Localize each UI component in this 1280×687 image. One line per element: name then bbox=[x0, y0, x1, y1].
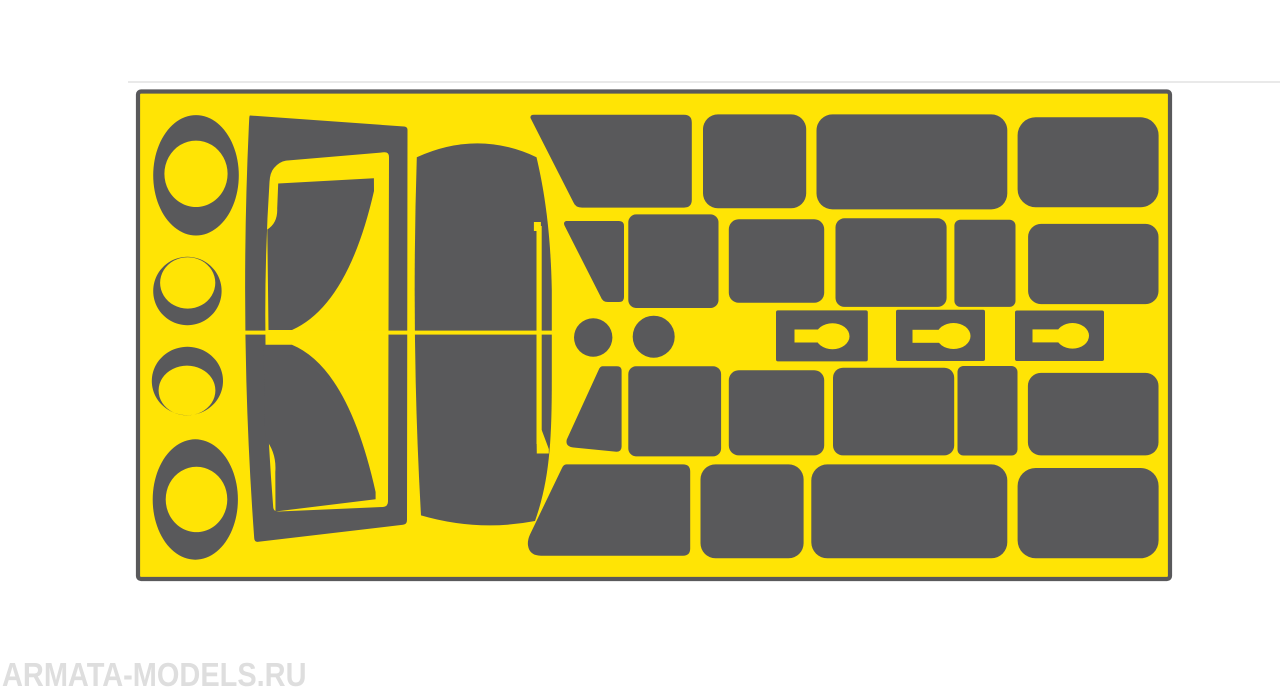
svg-text:ARMATA-MODELS.RU: ARMATA-MODELS.RU bbox=[2, 657, 307, 687]
